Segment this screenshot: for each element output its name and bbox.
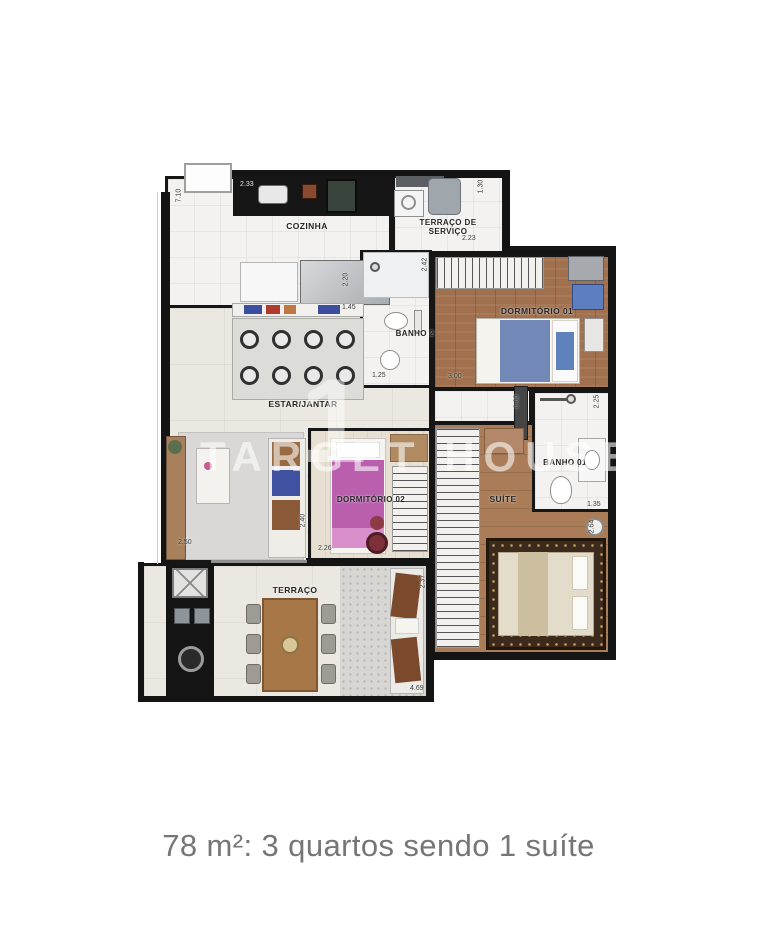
label-estar-jantar: ESTAR/JANTAR	[253, 400, 353, 410]
pillow-suite-2	[572, 596, 588, 630]
chair-icon	[321, 634, 336, 654]
dim-dorm1-bottom: 3.00	[448, 373, 462, 380]
centerpiece-icon	[281, 636, 299, 654]
dim-terraco-bottom: 4.69	[410, 685, 424, 692]
chair-icon	[246, 664, 261, 684]
wall-servico-right	[502, 170, 510, 254]
armchair-floral	[196, 448, 230, 504]
dimension-guide-left	[157, 192, 158, 564]
floorplan-page: { "caption": "78 m²: 3 quartos sendo 1 s…	[0, 0, 757, 928]
wall-right	[608, 246, 616, 660]
label-dormitorio-01: DORMITÓRIO 01	[477, 307, 597, 317]
label-banho-01: BANHO 01	[527, 458, 603, 467]
pillow-suite-1	[572, 556, 588, 590]
stove-icon	[302, 184, 317, 199]
label-suite: SUÍTE	[473, 495, 533, 505]
sofa-cushion-brown-1	[272, 442, 300, 466]
plate-icon	[272, 330, 291, 349]
throw-suite	[518, 552, 548, 636]
dim-servico-right: 1.30	[478, 172, 485, 202]
wall-terraco-left	[138, 562, 144, 702]
plate-icon	[240, 366, 259, 385]
wardrobe-dorm2	[392, 466, 428, 552]
flower-deco	[204, 462, 212, 470]
stool-red-icon	[366, 532, 388, 554]
ball-red-icon	[370, 516, 384, 530]
caption-text: 78 m²: 3 quartos sendo 1 suíte	[0, 828, 757, 864]
deco-orange	[284, 305, 296, 314]
sofa-cushion-brown-2	[272, 500, 300, 530]
sink-banho2-icon	[380, 350, 400, 370]
skylight-icon	[172, 568, 208, 598]
lounge-cushion-1	[390, 573, 421, 620]
dim-total-left: 7.10	[176, 181, 183, 211]
dim-hall-width: 0.80	[514, 387, 521, 417]
grill-tray-2	[194, 608, 210, 624]
dim-dorm2-bottom: 2.26	[318, 545, 332, 552]
desk-dorm2	[390, 434, 428, 462]
washing-machine-drum	[401, 195, 416, 210]
chair-icon	[246, 604, 261, 624]
plate-icon	[336, 366, 355, 385]
shower-head-banho1	[566, 394, 576, 404]
kitchen-island	[240, 262, 298, 302]
duvet-blue-dorm1	[500, 320, 550, 382]
wardrobe-dorm1	[436, 257, 544, 289]
dim-suite-right: 2.64	[589, 512, 596, 542]
wall-dorm1-top	[502, 246, 616, 254]
bench-suite	[484, 428, 524, 454]
sofa-cushion-blue	[272, 470, 300, 496]
label-terraco-servico: TERRAÇO DE SERVIÇO	[408, 218, 488, 236]
dim-dorm2-left: 2.40	[300, 506, 307, 536]
pillow-dorm2	[336, 442, 380, 458]
dim-banho2-bottom: 1.25	[372, 372, 386, 379]
toilet-banho2-icon	[384, 312, 408, 330]
dresser-dorm1	[568, 256, 604, 281]
wall-terraco-right	[426, 562, 434, 702]
dim-banho1-bottom: 1.35	[587, 501, 601, 508]
shower-icon	[370, 262, 380, 272]
label-banho-2: BANHO 2	[380, 329, 450, 338]
shower-pipe-banho1	[540, 398, 568, 401]
grill-icon	[178, 646, 204, 672]
deco-blue-2	[318, 305, 340, 314]
dim-cozinha-counter: 2.20	[343, 265, 350, 295]
toilet-banho1-icon	[550, 476, 572, 504]
plate-icon	[272, 366, 291, 385]
deco-blue-1	[244, 305, 262, 314]
plate-icon	[336, 330, 355, 349]
dim-estar-top: 1.45	[342, 304, 356, 311]
shower-box-banho2	[363, 252, 429, 298]
dim-terraco-right: 2.37	[420, 567, 427, 597]
column-top-left	[184, 163, 232, 193]
deco-red	[266, 305, 280, 314]
kitchen-sink-icon	[258, 185, 288, 204]
cooktop-icon	[326, 179, 357, 213]
sliding-door-terraco	[211, 560, 307, 563]
grill-tray-1	[174, 608, 190, 624]
lounge-cushion-2	[391, 637, 421, 683]
chair-icon	[321, 604, 336, 624]
dim-dorm1-left: 2.42	[422, 250, 429, 280]
plate-icon	[304, 366, 323, 385]
dim-servico-bottom: 2.23	[462, 235, 476, 242]
dim-cozinha-top: 2.33	[240, 181, 254, 188]
label-terraco: TERRAÇO	[250, 586, 340, 596]
tv-unit-dorm1	[584, 318, 604, 352]
wall-dorm2-bottom	[306, 558, 432, 566]
label-dormitorio-02: DORMITÓRIO 02	[311, 495, 431, 504]
lounge-pillow	[395, 618, 419, 634]
plate-icon	[240, 330, 259, 349]
wall-suite-bottom	[430, 652, 616, 660]
chair-icon	[246, 634, 261, 654]
plant-icon	[168, 440, 182, 454]
wardrobe-suite	[436, 428, 480, 648]
dim-estar-left: 2.50	[178, 539, 192, 546]
label-cozinha: COZINHA	[257, 222, 357, 232]
laundry-tank-icon	[428, 178, 461, 215]
chair-icon	[321, 664, 336, 684]
plate-icon	[304, 330, 323, 349]
cushion-blue-dorm1	[556, 332, 574, 370]
dim-banho1-right: 2.25	[594, 387, 601, 417]
